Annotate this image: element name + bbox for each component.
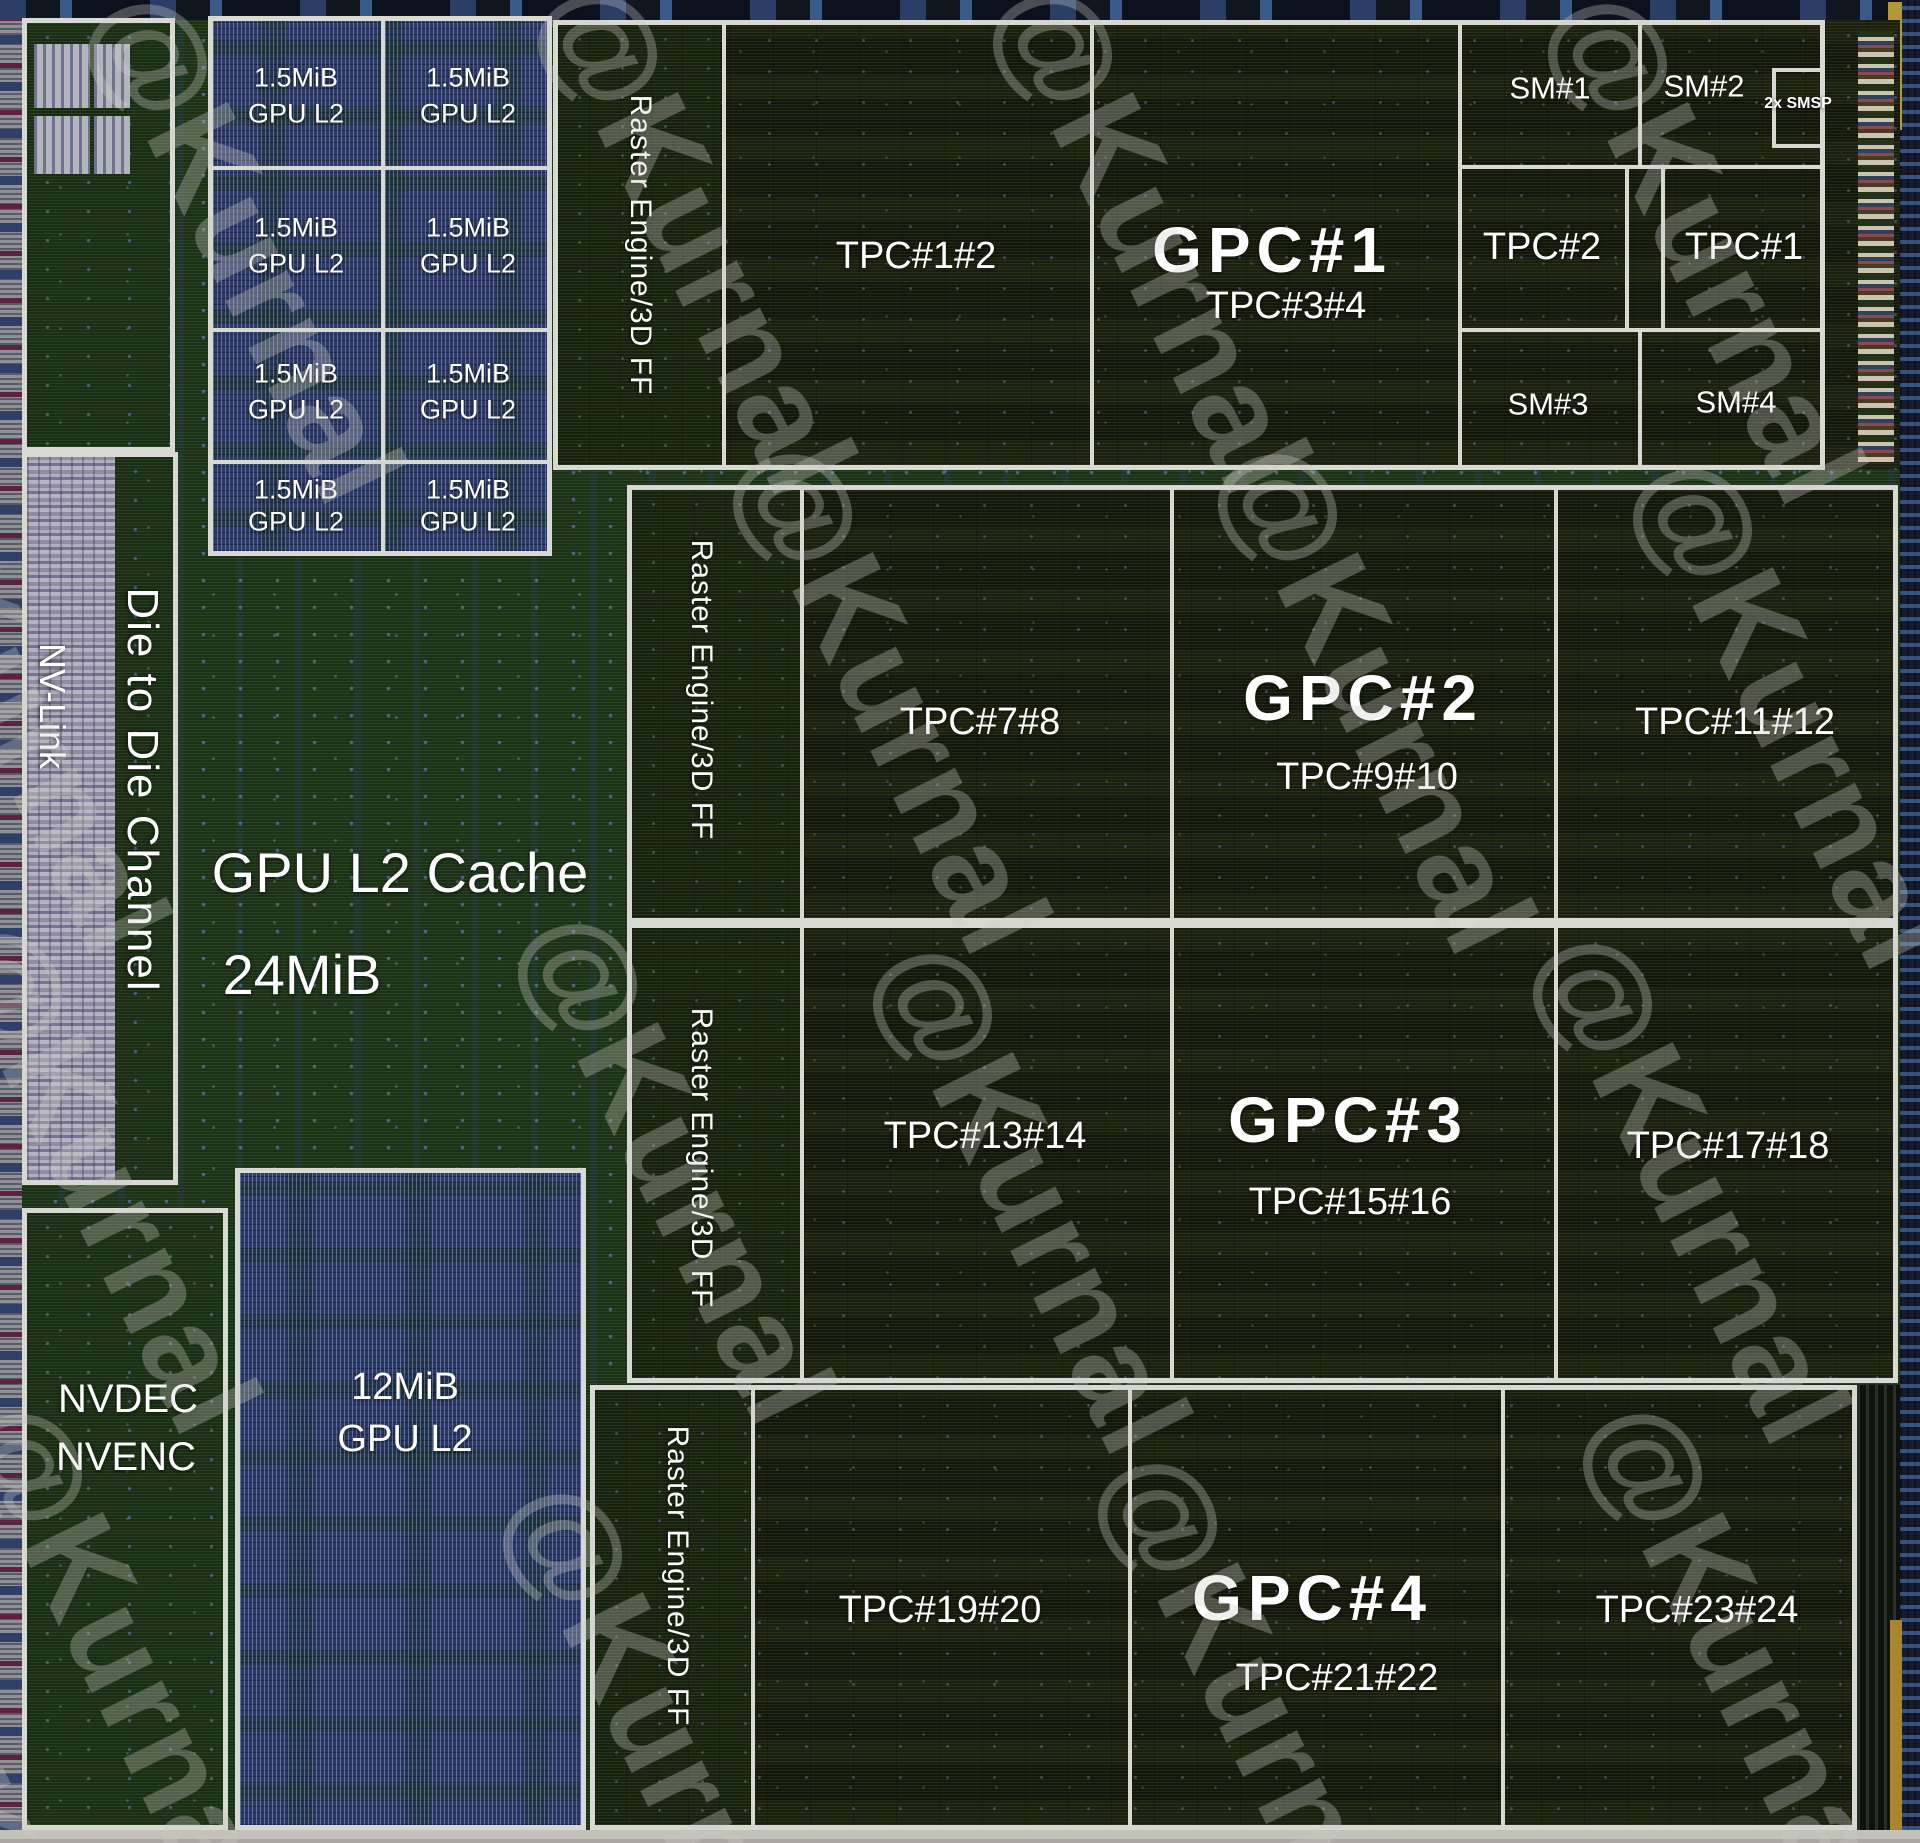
l2-cache-size: 24MiB xyxy=(223,947,382,1003)
sram-array xyxy=(34,44,90,108)
l2-cell-name: GPU L2 xyxy=(248,397,344,424)
l2-grid-row-divider xyxy=(208,460,552,464)
gpc1-divider xyxy=(722,20,726,470)
gpc1-tpc-col-divider xyxy=(1661,165,1665,332)
sm4-label: SM#4 xyxy=(1696,387,1777,418)
gpc3-tpc-sub-label: TPC#15#16 xyxy=(1249,1183,1452,1221)
gpc4-tpc-sub-label: TPC#21#22 xyxy=(1236,1659,1439,1697)
l2-cell-size: 1.5MiB xyxy=(254,215,338,242)
l2-cell-size: 1.5MiB xyxy=(426,477,510,504)
gpc4-tpc-right-label: TPC#23#24 xyxy=(1596,1591,1799,1629)
l2-cell-size: 1.5MiB xyxy=(254,65,338,92)
die-to-die-label: Die to Die Channel xyxy=(120,587,164,992)
smsp-label: 2x SMSP xyxy=(1764,96,1832,112)
l2-cell-name: GPU L2 xyxy=(420,101,516,128)
sram-array xyxy=(34,116,90,174)
nvdec-label: NVDEC xyxy=(58,1379,198,1419)
l2-cell-name: GPU L2 xyxy=(420,509,516,536)
gpc2-divider xyxy=(1170,485,1174,923)
l2-cell-size: 1.5MiB xyxy=(426,65,510,92)
sram-array xyxy=(94,44,130,108)
nvlink-label: NV-Link xyxy=(34,643,70,769)
die-edge-left xyxy=(0,20,22,1830)
gpc4-divider xyxy=(751,1385,755,1830)
die-edge-right xyxy=(1900,0,1920,1843)
gpc2-tpc-left-label: TPC#7#8 xyxy=(900,703,1061,741)
gpc1-tpc-col-divider xyxy=(1625,165,1629,332)
gpc2-tpc-sub-label: TPC#9#10 xyxy=(1276,758,1458,796)
l2-cell-size: 1.5MiB xyxy=(426,361,510,388)
l2-cell-name: GPU L2 xyxy=(420,397,516,424)
l2-12mib-name: GPU L2 xyxy=(337,1420,472,1458)
gpc3-divider xyxy=(1554,923,1558,1383)
gpc1-tpc-sub-label: TPC#3#4 xyxy=(1206,287,1367,325)
gpc2-divider xyxy=(800,485,804,923)
gpc1-tpc-left-label: TPC#1#2 xyxy=(836,237,997,275)
gpc1-divider xyxy=(1090,20,1094,470)
sm2-label: SM#2 xyxy=(1664,71,1745,102)
gpc2-raster-label: Raster Engine/3D FF xyxy=(686,540,716,841)
gpc1-sm-col-divider xyxy=(1638,20,1642,169)
tpc2-label: TPC#2 xyxy=(1483,228,1601,266)
bottom-right-yellow xyxy=(1890,1620,1902,1830)
gpc3-divider xyxy=(1170,923,1174,1383)
gpc3-tpc-right-label: TPC#17#18 xyxy=(1627,1127,1830,1165)
sm3-label: SM#3 xyxy=(1508,389,1589,420)
l2-grid-col-divider xyxy=(381,16,385,556)
l2-cell-size: 1.5MiB xyxy=(426,215,510,242)
sram-array xyxy=(94,116,130,174)
l2-cache-title: GPU L2 Cache xyxy=(212,845,589,901)
l2-12mib-size: 12MiB xyxy=(351,1368,459,1406)
gpc1-sm-grid-left xyxy=(1458,20,1462,470)
gpc4-name-label: GPC#4 xyxy=(1192,1566,1432,1630)
gpc3-raster-label: Raster Engine/3D FF xyxy=(686,1008,716,1309)
l2-cell-name: GPU L2 xyxy=(248,101,344,128)
l2-cell-name: GPU L2 xyxy=(420,251,516,278)
right-phy-column xyxy=(1858,30,1894,462)
gpc4-divider xyxy=(1501,1385,1505,1830)
gpc2-tpc-right-label: TPC#11#12 xyxy=(1635,703,1835,741)
nvlink-phy-texture xyxy=(27,457,115,1180)
nvenc-label: NVENC xyxy=(56,1437,196,1477)
gpc3-tpc-left-label: TPC#13#14 xyxy=(884,1117,1087,1155)
die-edge-bottom xyxy=(0,1830,1920,1843)
l2-cell-name: GPU L2 xyxy=(248,509,344,536)
gpc4-raster-label: Raster Engine/3D FF xyxy=(662,1426,692,1727)
tpc1-label: TPC#1 xyxy=(1685,228,1803,266)
l2-grid-row-divider xyxy=(208,166,552,170)
gpc2-divider xyxy=(1554,485,1558,923)
l2-cell-name: GPU L2 xyxy=(248,251,344,278)
l2-cell-size: 1.5MiB xyxy=(254,477,338,504)
gpc3-divider xyxy=(800,923,804,1383)
gpc2-name-label: GPC#2 xyxy=(1243,666,1483,730)
gpc3-name-label: GPC#3 xyxy=(1228,1088,1468,1152)
gpc1-raster-label: Raster Engine/3D FF xyxy=(625,95,655,396)
nvdec-box xyxy=(22,1208,228,1830)
gpc4-divider xyxy=(1128,1385,1132,1830)
gpu-die-shot: NV-Link Die to Die Channel GPU L2 Cache … xyxy=(0,0,1920,1843)
l2-cell-size: 1.5MiB xyxy=(254,361,338,388)
gpc1-name-label: GPC#1 xyxy=(1152,218,1392,282)
gpc4-tpc-left-label: TPC#19#20 xyxy=(839,1591,1042,1629)
l2-12mib-box xyxy=(235,1168,586,1830)
l2-grid-row-divider xyxy=(208,328,552,332)
sm1-label: SM#1 xyxy=(1510,73,1591,104)
gpc1-sm-col-divider xyxy=(1638,328,1642,470)
